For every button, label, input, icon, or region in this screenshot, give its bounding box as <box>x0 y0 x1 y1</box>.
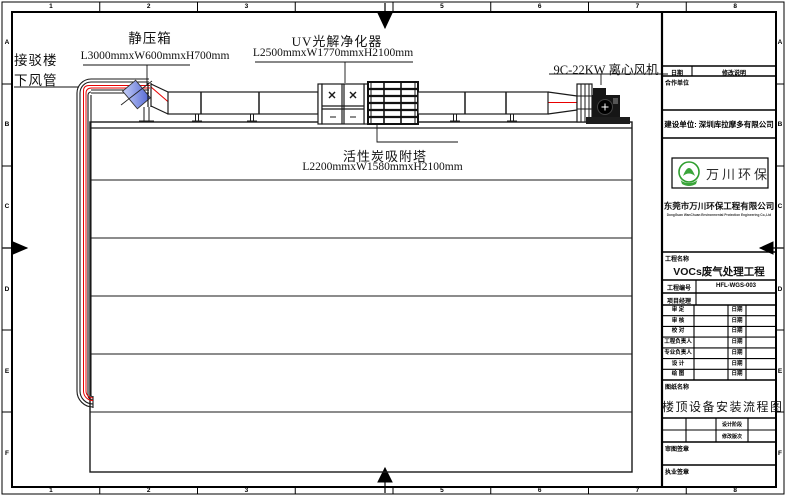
signature-row-date-label: 日期 <box>728 305 746 316</box>
zone-label: 3 <box>236 487 256 494</box>
signature-row-date-label: 日期 <box>728 369 746 380</box>
zone-label: 5 <box>432 487 452 494</box>
titleblock-partner-label: 合作单位 <box>665 78 689 87</box>
zone-label: 1 <box>41 3 61 10</box>
label-duct-connection-line1: 接驳楼 <box>14 49 58 69</box>
label-duct-connection-line2: 下风管 <box>14 69 58 89</box>
project-no-label: 工程编号 <box>662 283 696 292</box>
signature-row-label: 校 对 <box>662 326 694 337</box>
zone-label: 7 <box>627 3 647 10</box>
zone-label: F <box>770 450 786 457</box>
label-static-box-dims: L3000mmxW600mmxH700mm <box>78 50 232 62</box>
zone-label: 3 <box>236 3 256 10</box>
centrifugal-fan <box>577 84 630 124</box>
label-static-box-name: 静压箱 <box>100 27 200 47</box>
signature-row-label: 设 计 <box>662 359 694 370</box>
signature-row-label: 审 定 <box>662 305 694 316</box>
zone-label: 6 <box>530 487 550 494</box>
zone-label: 6 <box>530 3 550 10</box>
zone-label: C <box>0 203 17 210</box>
zone-label: 2 <box>139 3 159 10</box>
titleblock-revision-date-header: 日期 <box>662 68 692 77</box>
zone-label: D <box>770 286 786 293</box>
project-name-label: 工程名称 <box>665 254 689 263</box>
signature-row-date-label: 日期 <box>728 348 746 359</box>
zone-label: A <box>770 39 786 46</box>
zone-label: C <box>770 203 786 210</box>
zone-label: 5 <box>432 3 452 10</box>
signature-row-date-label: 日期 <box>728 326 746 337</box>
pipe-centerline <box>84 86 578 401</box>
signature-row-date-label: 日期 <box>728 337 746 348</box>
seal1-label: 审图签章 <box>665 444 689 453</box>
zone-label: B <box>770 121 786 128</box>
zone-label: E <box>770 368 786 375</box>
drawing-name-label: 图纸名称 <box>665 382 689 391</box>
company-name-en: DongGuan WanChuan Environmental Protecti… <box>662 213 776 217</box>
project-manager-label: 项目经理 <box>662 296 696 305</box>
carbon-tower-unit <box>368 82 418 124</box>
signature-row-date-label: 日期 <box>728 359 746 370</box>
zone-label: B <box>0 121 17 128</box>
project-no-value: HFL-WGS-003 <box>696 283 776 289</box>
design-stage-label: 设计阶段 <box>716 421 748 428</box>
zone-label: F <box>0 450 17 457</box>
zone-label: 1 <box>41 487 61 494</box>
zone-label: 7 <box>627 487 647 494</box>
signature-row-label: 审 核 <box>662 316 694 327</box>
building-elevation <box>90 122 632 472</box>
label-uv-dims: L2500mmxW1770mmxH2100mm <box>248 47 418 59</box>
zone-label: D <box>0 286 17 293</box>
signature-row-label: 专业负责人 <box>662 348 694 359</box>
zone-label: 2 <box>139 487 159 494</box>
signature-row-label: 绘 图 <box>662 369 694 380</box>
label-carbon-dims: L2200mmxW1580mmxH2100mm <box>295 161 470 173</box>
zone-label: 8 <box>725 487 745 494</box>
revision-no-label: 修改版次 <box>716 433 748 440</box>
company-logo-text: 万川环保 <box>706 164 770 183</box>
signature-row-label: 工程负责人 <box>662 337 694 348</box>
project-name-value: VOCs废气处理工程 <box>662 264 776 279</box>
label-fan-name: 9C-22KW 离心风机 <box>540 59 672 78</box>
company-name-cn: 东莞市万川环保工程有限公司 <box>660 200 778 212</box>
drawing-sheet: 接驳楼 下风管 静压箱 L3000mmxW600mmxH700mm UV光解净化… <box>0 0 786 496</box>
drawing-name-value: 楼顶设备安装流程图 <box>662 398 776 415</box>
zone-label: A <box>0 39 17 46</box>
uv-purifier-unit <box>318 84 368 124</box>
duct-run-1 <box>139 83 318 121</box>
zone-label: 8 <box>725 3 745 10</box>
company-logo-icon <box>679 162 699 186</box>
duct-run-2 <box>418 92 577 121</box>
signature-row-date-label: 日期 <box>728 316 746 327</box>
zone-label: E <box>0 368 17 375</box>
seal2-label: 执业签章 <box>665 467 689 476</box>
titleblock-owner-line: 建设单位: 深圳库拉摩多有限公司 <box>662 119 776 130</box>
titleblock-revision-desc-header: 修改说明 <box>692 68 776 77</box>
